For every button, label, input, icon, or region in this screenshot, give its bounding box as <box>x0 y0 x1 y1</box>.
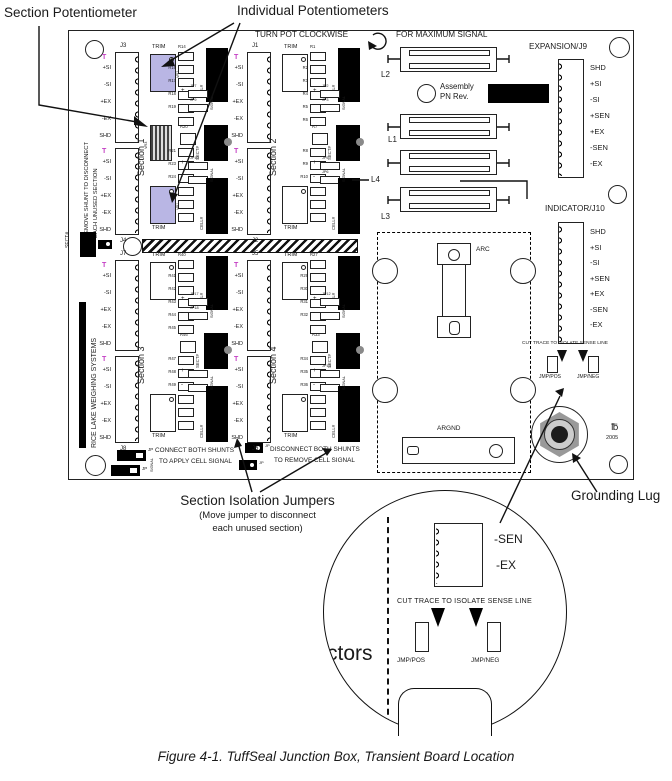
pin-label: SHD <box>96 134 111 140</box>
pot-dot <box>169 57 174 62</box>
sect-chip-led <box>356 138 364 146</box>
pin-label: +EX <box>96 194 111 200</box>
jp-jumper <box>320 384 340 392</box>
resistor-label: R23 <box>158 162 176 166</box>
indicator-pin-label: +SI <box>590 244 601 252</box>
signal-mark: SIGNAL <box>210 294 214 318</box>
pin-label: SHD <box>228 134 243 140</box>
jumper-sign: - <box>313 174 315 180</box>
resistor <box>178 52 194 61</box>
jumper-sign: + <box>181 368 185 374</box>
figure-page: Section Potentiometer Individual Potenti… <box>0 0 672 781</box>
cut-trace-arrow <box>431 608 445 627</box>
sect-chip-led <box>356 346 364 354</box>
vr-label: VR1 <box>176 190 180 210</box>
pin-label: +SI <box>96 66 111 72</box>
resistor <box>310 421 326 430</box>
resistor-label: R8 <box>290 149 308 153</box>
pin-label: +EX <box>228 402 243 408</box>
jp-jumper-label: JP5 <box>322 156 329 160</box>
jp-jumper <box>320 176 340 184</box>
expansion-pin-label: +EX <box>590 128 604 136</box>
resistor <box>178 213 194 222</box>
section-pot-striped <box>150 125 172 161</box>
tee-mark: T <box>102 356 106 363</box>
trim-label: TRIM <box>152 45 165 51</box>
inset-jmp-pos-label: JMP/POS <box>397 658 425 665</box>
pin-label: -SI <box>228 385 243 391</box>
signal-mark: SIGNAL <box>342 158 346 182</box>
jp-jumper-label: JP13 <box>322 364 331 368</box>
jp-jumper-label: JP17 <box>190 292 199 296</box>
jp-jumper-label: JP6 <box>322 170 329 174</box>
mid-resistor <box>312 133 328 145</box>
pin-label: -EX <box>228 325 243 331</box>
jumper-sign: + <box>181 160 185 166</box>
tee-mark: T <box>102 148 106 155</box>
resistor <box>310 52 326 61</box>
jumper-sign: + <box>313 160 317 166</box>
connector-label-top: J1 <box>252 43 258 49</box>
resistor <box>178 421 194 430</box>
inset-cut-trace-note: CUT TRACE TO ISOLATE SENSE LINE <box>397 597 532 605</box>
pot-dot <box>301 57 306 62</box>
resistor <box>178 395 194 404</box>
cut-trace-arrow <box>469 608 483 627</box>
tee-mark: T <box>234 356 238 363</box>
jp-jumper <box>188 176 208 184</box>
mid-resistor <box>180 133 196 145</box>
pin-label: +SI <box>96 274 111 280</box>
resistor-label: R35 <box>290 370 308 374</box>
trim-label: TRIM <box>152 253 165 259</box>
resistor <box>178 273 194 282</box>
connector-label-bottom: J6 <box>252 446 258 452</box>
jumper-sign: + <box>313 368 317 374</box>
tee-mark: T <box>234 148 238 155</box>
expansion-pin-label: +SEN <box>590 112 610 120</box>
resistor <box>178 260 194 269</box>
jp-jumper-label: JP2 <box>322 84 329 88</box>
resistor-label: R18 <box>158 92 176 96</box>
resistor-label: R17 <box>158 79 176 83</box>
vr-label: VR3 <box>144 129 148 149</box>
jp-jumper-label: JP7 <box>190 84 197 88</box>
mid-resistor <box>180 341 196 353</box>
pin-label: +SI <box>96 368 111 374</box>
mid-resistor-label: R7 <box>312 125 317 129</box>
resistor-label: R9 <box>290 162 308 166</box>
inset-cable-notch <box>398 688 492 736</box>
jp-jumper <box>188 384 208 392</box>
jp-jumper <box>320 104 340 112</box>
resistor-label: R34 <box>290 357 308 361</box>
jp-jumper-label: JP9 <box>190 98 197 102</box>
connector-label-bottom: J2 <box>252 238 258 244</box>
cell-chip-label: CELL# <box>200 392 205 438</box>
pot-dot <box>169 265 174 270</box>
resistor-label: R29 <box>290 274 308 278</box>
resistor <box>310 260 326 269</box>
pin-label: SHD <box>96 342 111 348</box>
expansion-pin-label: -SEN <box>590 144 608 152</box>
pin-label: -SI <box>96 177 111 183</box>
resistor <box>178 187 194 196</box>
indicator-pin-label: +EX <box>590 290 604 298</box>
mid-resistor-label: R33 <box>312 333 320 337</box>
cell-chip <box>206 178 228 234</box>
pin-label: +EX <box>228 100 243 106</box>
pot-dot <box>301 265 306 270</box>
resistor-label: R43 <box>158 300 176 304</box>
pin-label: +EX <box>96 402 111 408</box>
resistor-label: R19 <box>158 105 176 109</box>
jp-jumper <box>320 162 340 170</box>
pin-label: +EX <box>96 100 111 106</box>
sect-chip-label: SECT# <box>328 128 333 160</box>
inset-connector-wavy-edge <box>436 526 443 584</box>
pin-label: -SI <box>96 83 111 89</box>
isolation-note-line1: (Move jumper to disconnect <box>160 511 355 521</box>
resistor <box>310 200 326 209</box>
resistor <box>310 187 326 196</box>
pin-label: +SI <box>228 66 243 72</box>
jumper-sign: + <box>313 296 317 302</box>
figure-caption: Figure 4-1. TuffSeal Junction Box, Trans… <box>0 750 672 764</box>
pin-label: SHD <box>96 436 111 442</box>
pot-dot <box>169 397 174 402</box>
resistor-label: R5 <box>290 105 308 109</box>
jp-jumper-label: JP12 <box>322 292 331 296</box>
trim-label: TRIM <box>284 253 297 259</box>
cell-chip <box>338 178 360 234</box>
connector-label-bottom: J8 <box>120 446 126 452</box>
jumper-sign: - <box>181 310 183 316</box>
resistor <box>310 65 326 74</box>
tee-mark: T <box>234 54 238 61</box>
sect-chip-label: SECT# <box>196 336 201 368</box>
indicator-pin-label: SHD <box>590 228 606 236</box>
resistor-label: R40 <box>178 253 186 257</box>
resistor <box>178 200 194 209</box>
resistor-label: R2 <box>290 66 308 70</box>
resistor-label: R31 <box>290 300 308 304</box>
mid-resistor-label: R46 <box>180 333 188 337</box>
signal-mark: SIGNAL <box>210 86 214 110</box>
section-isolation-jumpers-label: Section Isolation Jumpers <box>160 494 355 508</box>
expansion-pin-label: +SI <box>590 80 601 88</box>
cell-chip-label: CELL# <box>332 184 337 230</box>
pin-label: +SI <box>228 274 243 280</box>
inset-jmp-neg-label: JMP/NEG <box>471 658 499 665</box>
connector-label-top: J5 <box>252 251 258 257</box>
section-label: Section 2 <box>269 114 278 176</box>
tee-mark: T <box>102 262 106 269</box>
trim-label: TRIM <box>152 226 165 232</box>
jumper-sign: - <box>181 102 183 108</box>
resistor-label: R24 <box>158 175 176 179</box>
resistor-label: R42 <box>158 287 176 291</box>
pin-label: -SI <box>228 291 243 297</box>
trim-label: TRIM <box>152 434 165 440</box>
resistor-label: R14 <box>178 45 186 49</box>
expansion-pin-label: -EX <box>590 160 603 168</box>
trim-label: TRIM <box>284 45 297 51</box>
pot-dot <box>169 189 174 194</box>
jp-jumper <box>320 298 340 306</box>
section-label: Section 4 <box>269 322 278 384</box>
pin-label: +EX <box>96 308 111 314</box>
inset-ex-label: -EX <box>496 559 516 572</box>
pin-label: -EX <box>96 325 111 331</box>
jp-jumper-label: JP18 <box>190 306 199 310</box>
resistor <box>310 408 326 417</box>
inset-jmp-pos-jumper <box>415 622 429 652</box>
section-label: Section 3 <box>137 322 146 384</box>
resistor-label: R41 <box>158 274 176 278</box>
resistor <box>178 356 194 365</box>
signal-mark: SIGNAL <box>342 366 346 390</box>
jumper-sign: - <box>313 382 315 388</box>
jumper-sign: - <box>181 174 183 180</box>
jp-jumper <box>188 298 208 306</box>
resistor-label: R27 <box>310 253 318 257</box>
jp-jumper-label: JP3 <box>322 98 329 102</box>
jumper-sign: - <box>313 102 315 108</box>
resistor-label: R30 <box>290 287 308 291</box>
resistor-label: R44 <box>158 313 176 317</box>
resistor-label: R21 <box>158 149 176 153</box>
resistor-label: R45 <box>158 326 176 330</box>
resistor-label: R4 <box>290 92 308 96</box>
pin-label: SHD <box>228 228 243 234</box>
connector-label-top: J3 <box>120 43 126 49</box>
resistor-label: R6 <box>290 118 308 122</box>
resistor <box>178 65 194 74</box>
inset-partial-text: ctors <box>327 643 373 665</box>
jp-jumper-label: JP10 <box>190 156 199 160</box>
pin-label: +SI <box>228 368 243 374</box>
jp-jumper <box>320 312 340 320</box>
pin-label: SHD <box>96 228 111 234</box>
resistor-label: R1 <box>310 45 315 49</box>
resistor-label: R10 <box>290 175 308 179</box>
jumper-sign: + <box>181 296 185 302</box>
isolation-note-line2: each unused section) <box>160 524 355 534</box>
resistor-label: R49 <box>158 383 176 387</box>
resistor <box>178 408 194 417</box>
resistor-label: R16 <box>158 66 176 70</box>
tee-mark: T <box>234 262 238 269</box>
signal-mark: SIGNAL <box>342 86 346 110</box>
indicator-pin-label: +SEN <box>590 275 610 283</box>
resistor <box>310 213 326 222</box>
pin-label: -EX <box>228 117 243 123</box>
grounding-lug-label: Grounding Lug <box>571 489 660 503</box>
mid-resistor-label: R20 <box>180 125 188 129</box>
jp-jumper <box>320 90 340 98</box>
jumper-sign: + <box>181 88 185 94</box>
pin-label: +EX <box>228 194 243 200</box>
jp-jumper <box>188 162 208 170</box>
resistor-label: R36 <box>290 383 308 387</box>
expansion-pin-label: -SI <box>590 96 600 104</box>
pin-label: -EX <box>228 419 243 425</box>
indicator-pin-label: -SI <box>590 259 600 267</box>
connector-label-bottom: J4 <box>120 238 126 244</box>
jp-jumper <box>188 370 208 378</box>
mid-resistor <box>312 341 328 353</box>
trim-label: TRIM <box>284 434 297 440</box>
jumper-sign: + <box>313 88 317 94</box>
pin-label: SHD <box>228 436 243 442</box>
pin-label: -EX <box>96 211 111 217</box>
cell-chip-label: CELL# <box>332 392 337 438</box>
jumper-sign: - <box>181 382 183 388</box>
pin-label: +SI <box>96 160 111 166</box>
pin-label: +EX <box>228 308 243 314</box>
trim-label: TRIM <box>284 226 297 232</box>
resistor-label: R32 <box>290 313 308 317</box>
pin-label: -EX <box>96 117 111 123</box>
pot-dot <box>301 189 306 194</box>
inset-jmp-neg-jumper <box>487 622 501 652</box>
jp-jumper <box>320 370 340 378</box>
resistor-label: R47 <box>158 357 176 361</box>
pot-dot <box>301 397 306 402</box>
pin-label: +SI <box>228 160 243 166</box>
jp-jumper <box>188 104 208 112</box>
inset-sen-label: -SEN <box>494 533 523 546</box>
cell-chip-label: CELL# <box>200 184 205 230</box>
pin-label: -SI <box>96 385 111 391</box>
cell-chip <box>338 386 360 442</box>
signal-mark: SIGNAL <box>342 294 346 318</box>
jumper-sign: - <box>313 310 315 316</box>
pin-label: -SI <box>228 83 243 89</box>
cell-chip <box>206 386 228 442</box>
pin-label: -EX <box>228 211 243 217</box>
signal-mark: SIGNAL <box>210 366 214 390</box>
pin-label: -EX <box>96 419 111 425</box>
pin-label: -SI <box>96 291 111 297</box>
resistor <box>310 395 326 404</box>
indicator-pin-label: -EX <box>590 321 603 329</box>
expansion-pin-label: SHD <box>590 64 606 72</box>
resistor-label: R48 <box>158 370 176 374</box>
indicator-pin-label: -SEN <box>590 306 608 314</box>
jp-jumper <box>188 312 208 320</box>
pin-label: -SI <box>228 177 243 183</box>
jp-jumper <box>188 90 208 98</box>
tee-mark: T <box>102 54 106 61</box>
inset-dashed-line <box>387 517 389 734</box>
resistor-label: R3 <box>290 79 308 83</box>
signal-mark: SIGNAL <box>210 158 214 182</box>
connector-label-top: J7 <box>120 251 126 257</box>
pin-label: SHD <box>228 342 243 348</box>
resistor <box>310 273 326 282</box>
